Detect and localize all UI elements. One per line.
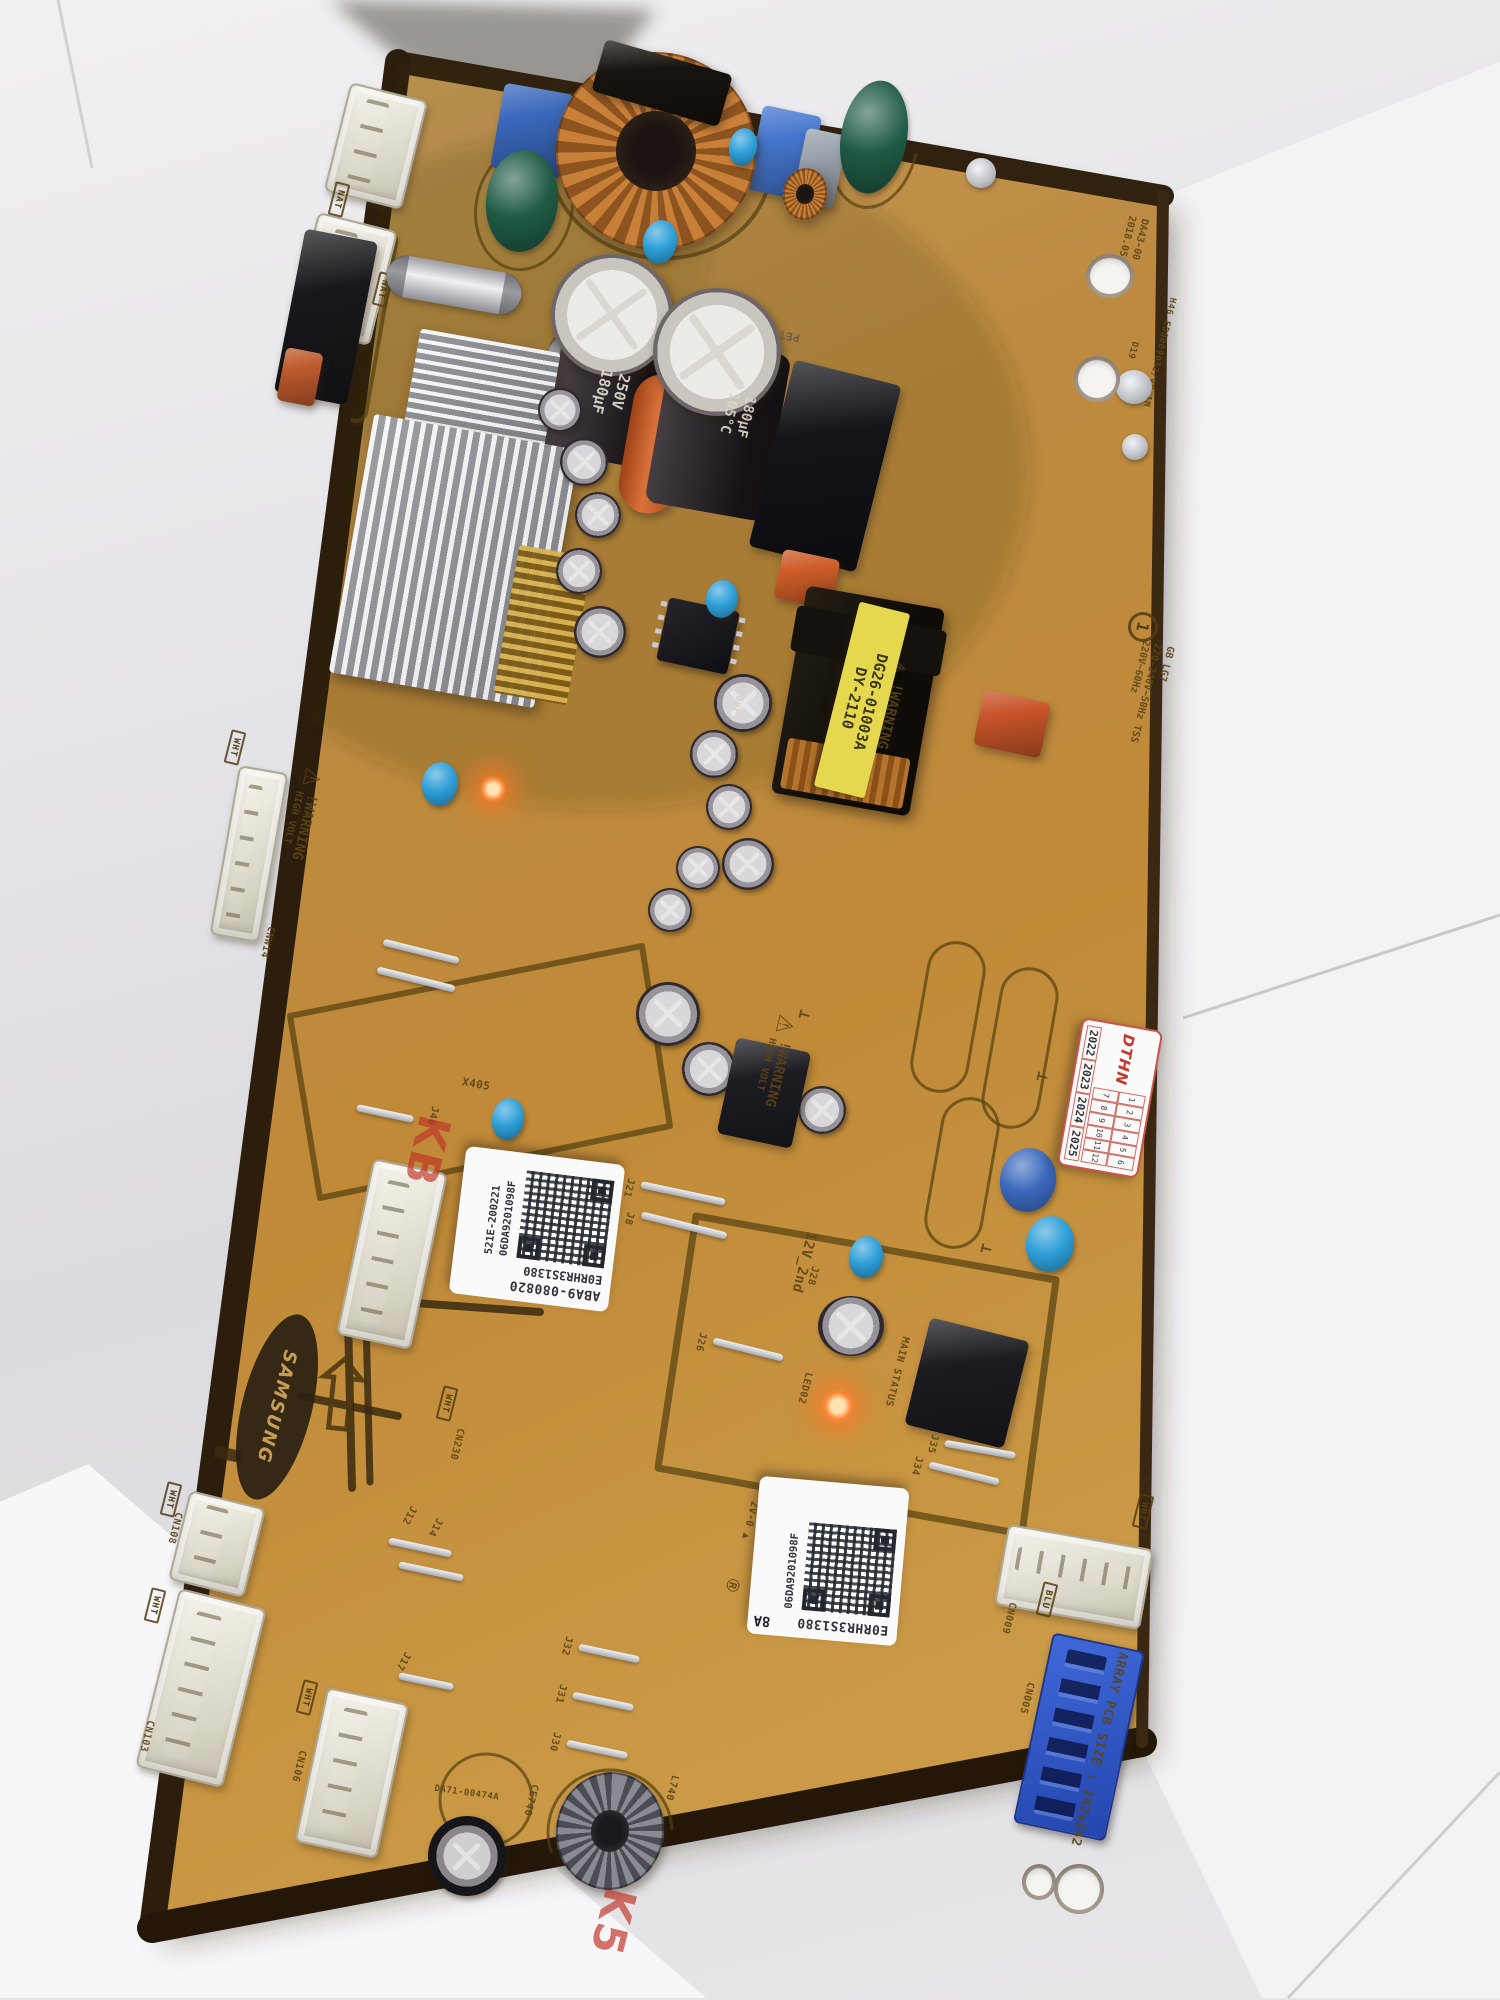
disc-capacitor-blue-6 bbox=[846, 1233, 887, 1280]
led-main-status bbox=[822, 1388, 854, 1424]
film-disc-blue-right-2 bbox=[1022, 1212, 1079, 1275]
qr-sticker-2: E0RHR3S1380 8A 06DA9201098F bbox=[746, 1476, 909, 1646]
qr-finder-icon bbox=[590, 1178, 615, 1203]
plated-hole-small bbox=[1022, 1864, 1056, 1900]
ecap-4 bbox=[556, 548, 602, 594]
silk-j31: J31 bbox=[551, 1683, 569, 1713]
ecap-11 bbox=[648, 888, 692, 932]
cn108-connector bbox=[168, 1490, 266, 1598]
cn106-color-label: WHT bbox=[296, 1679, 319, 1716]
solder-dot-3 bbox=[966, 158, 996, 188]
qr-code-1 bbox=[516, 1170, 614, 1268]
vent-hole-1 bbox=[1086, 254, 1134, 298]
date-sticker-months: 1 2 3 4 5 6 7 8 9 10 11 12 bbox=[1080, 1087, 1145, 1171]
led-red bbox=[480, 774, 506, 804]
disc-capacitor-blue-4 bbox=[419, 760, 461, 809]
ce740-capacitor bbox=[428, 1816, 506, 1896]
ecap-5 bbox=[574, 606, 626, 658]
component-layer: NATNAT250V180µF180µF105°CPET470µFX405LED… bbox=[0, 0, 1500, 2000]
l740-toroid bbox=[547, 1764, 674, 1899]
mount-hole-bottom-right bbox=[1054, 1864, 1104, 1914]
qr-finder-icon bbox=[582, 1244, 607, 1269]
silk-main-status: MAIN STATUS bbox=[878, 1335, 911, 1422]
jumper-j26 bbox=[712, 1337, 784, 1361]
silk-gb-lg7: GB LG7220-240V~50Hz TSS220V~60Hz bbox=[1100, 636, 1176, 764]
photo-of-samsung-pcb: NATNAT250V180µF180µF105°CPET470µFX405LED… bbox=[0, 0, 1500, 2000]
silk-j35: J35 bbox=[923, 1433, 941, 1463]
ecap-12 bbox=[636, 982, 700, 1046]
ecap-3 bbox=[575, 492, 621, 538]
black-module-3 bbox=[904, 1317, 1030, 1448]
jumper-j31 bbox=[572, 1692, 634, 1712]
vent-hole-2 bbox=[1074, 356, 1120, 402]
cn009-connector bbox=[994, 1524, 1154, 1630]
mov-disc-green-2 bbox=[832, 75, 917, 199]
silk-cn009: CN009 bbox=[995, 1601, 1019, 1649]
qr-finder-icon bbox=[873, 1528, 897, 1552]
silk-arrow-up: ⇧ bbox=[280, 1331, 402, 1462]
silk-gnd-2: ⊥ bbox=[1030, 1070, 1054, 1094]
jumper-j30 bbox=[566, 1740, 628, 1760]
high-voltage-warning-icon: ⚠ bbox=[297, 765, 326, 790]
silk-recycle-r: Ⓡ bbox=[723, 1577, 744, 1602]
jumper-j14 bbox=[398, 1561, 464, 1582]
cn106-connector bbox=[294, 1687, 409, 1859]
silk-gnd-3: ⊥ bbox=[974, 1242, 998, 1266]
cnw14-color-label: WHT bbox=[224, 729, 247, 766]
fuse-cylinder-1 bbox=[383, 253, 524, 318]
ecap-2 bbox=[560, 438, 608, 486]
jumper-j32 bbox=[578, 1644, 640, 1664]
date-sticker-brand: DTHN bbox=[1094, 1028, 1156, 1092]
stamp-k5: K5 bbox=[579, 1882, 646, 1963]
silk-j8: J8 bbox=[619, 1211, 636, 1237]
silk-da71: DA71-00474A bbox=[434, 1783, 539, 1809]
film-disc-blue-right-1 bbox=[995, 1144, 1061, 1217]
jumper-j12 bbox=[388, 1537, 452, 1557]
ecap-9 bbox=[722, 838, 774, 890]
sticker2-badge: 8A bbox=[753, 1612, 771, 1629]
jumper-j17 bbox=[398, 1672, 454, 1690]
jumper-j40 bbox=[356, 1104, 414, 1123]
ecap-10 bbox=[676, 846, 720, 890]
qr-finder-icon bbox=[802, 1588, 826, 1612]
ecap-14 bbox=[798, 1086, 846, 1134]
solder-dot-1 bbox=[1116, 370, 1152, 404]
disc-capacitor-blue-5 bbox=[489, 1096, 528, 1143]
solder-dot-2 bbox=[1122, 434, 1148, 460]
silk-j12: J12 bbox=[395, 1504, 420, 1536]
ecap-7 bbox=[690, 730, 738, 778]
jumper-j8 bbox=[640, 1211, 727, 1239]
qr-finder-icon bbox=[516, 1236, 541, 1261]
ecap-8 bbox=[706, 784, 752, 830]
cn009-color-label: WHT bbox=[1132, 1493, 1155, 1530]
silk-x405: X405 bbox=[461, 1074, 507, 1095]
jumper-j34 bbox=[928, 1461, 1000, 1485]
silk-cn230: CN230 bbox=[443, 1427, 467, 1475]
jumper-j21 bbox=[640, 1181, 726, 1206]
sticker2-code-vertical: 06DA9201098F bbox=[783, 1521, 803, 1610]
silk-led02: LED02 bbox=[791, 1371, 815, 1419]
silk-l740: L740 bbox=[659, 1774, 681, 1816]
jumper-top-2 bbox=[376, 966, 455, 992]
cn230-color-label: WHT bbox=[436, 1385, 459, 1422]
silk-d19: D19 bbox=[1122, 340, 1141, 372]
silk-j26: J26 bbox=[691, 1331, 709, 1361]
orange-box-right bbox=[973, 690, 1051, 759]
qr-finder-icon bbox=[867, 1594, 891, 1618]
silk-j14: J14 bbox=[421, 1516, 446, 1548]
ecap-15 bbox=[818, 1296, 884, 1356]
ecap-1 bbox=[538, 388, 582, 432]
cn103-color-label: WHT bbox=[144, 1587, 167, 1624]
silk-j32: J32 bbox=[557, 1635, 575, 1665]
silk-j30: J30 bbox=[545, 1731, 563, 1761]
qr-code-2 bbox=[802, 1522, 897, 1617]
stamp-kb: KB bbox=[394, 1111, 459, 1191]
qr-sticker-1: ABA9-080820 E0RHR3S1380 06DA9201098F 521… bbox=[449, 1146, 626, 1312]
jumper-top-1 bbox=[382, 939, 459, 965]
